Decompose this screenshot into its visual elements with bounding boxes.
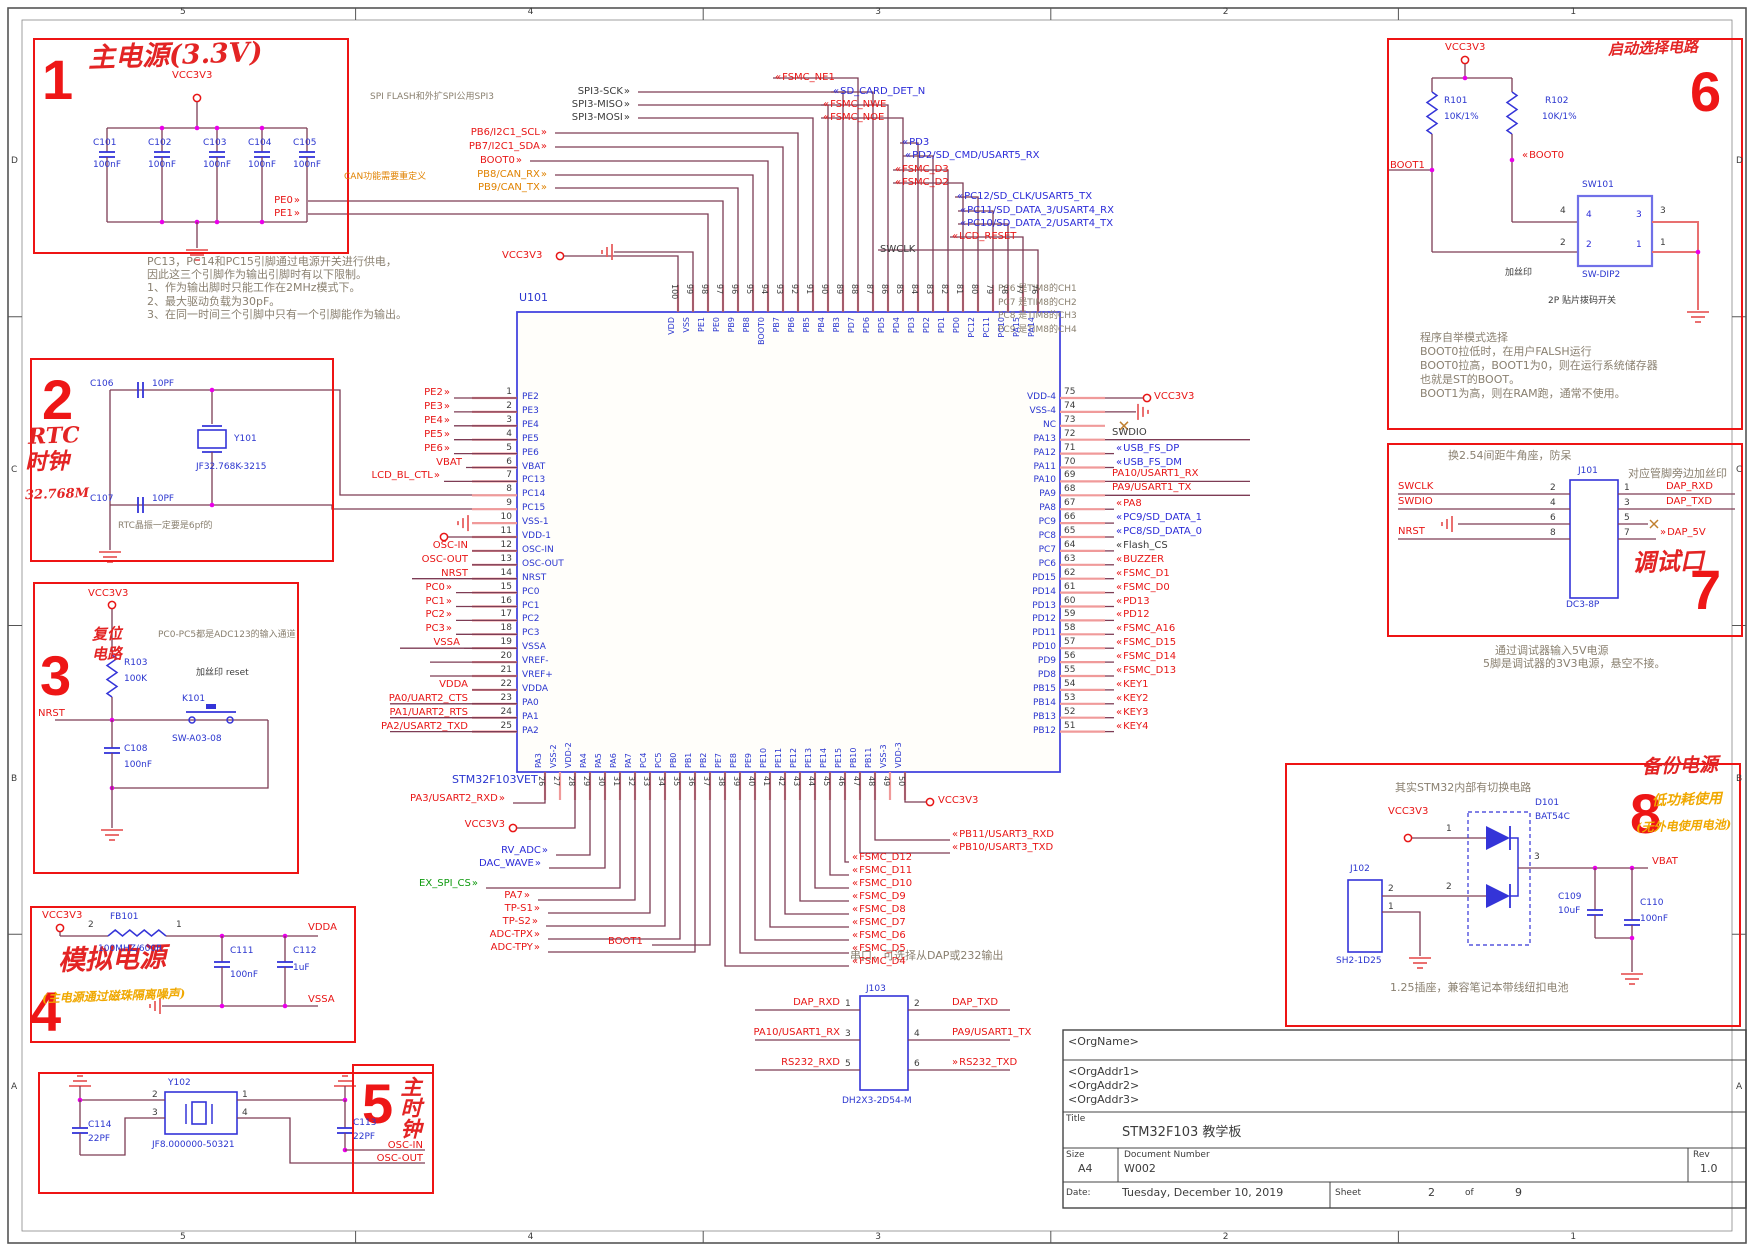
crystal-part: JF8.000000-50321 (152, 1140, 235, 1150)
pin-number: 7 (506, 470, 512, 480)
pin-number: 51 (1064, 721, 1075, 731)
net-label: LCD_BL_CTL (372, 470, 440, 482)
net-label: BOOT0 (480, 155, 522, 167)
pin-name: PC8 (1039, 531, 1056, 541)
pin-number: 74 (1064, 401, 1075, 411)
ruler-bottom-tick: 4 (528, 1232, 534, 1242)
pin-number: 2 (88, 920, 94, 930)
pin-name: PC7 (1039, 545, 1056, 555)
net-label: SWCLK (1398, 481, 1433, 493)
pin-number: 36 (684, 776, 696, 786)
net-label: DAP_TXD (1666, 496, 1712, 508)
net-label: DAP_RXD (793, 997, 840, 1009)
mcu-note-can: CAN功能需要重定义 (344, 172, 426, 182)
pin-number: 93 (772, 284, 784, 294)
pin-name: PC2 (522, 614, 539, 624)
net-label: PC8/SD_DATA_0 (1116, 526, 1202, 538)
pin-name: VSSA (522, 642, 546, 652)
pin-name: PD15 (1032, 573, 1056, 583)
pin-name: PD0 (952, 317, 964, 333)
pin-number: 30 (594, 776, 606, 786)
pin-name: VDD-4 (1027, 392, 1056, 402)
pin-name: PB12 (1033, 726, 1056, 736)
net-label: TP-S1 (505, 903, 540, 915)
pin-name: PB2 (699, 726, 711, 768)
ruler-left-tick: B (11, 774, 17, 784)
cap-ref: C105 (293, 138, 316, 148)
pin-number: 97 (712, 284, 724, 294)
pin-name: PB3 (832, 317, 844, 332)
pin-number: 71 (1064, 443, 1075, 453)
pin-number: 92 (787, 284, 799, 294)
net-label: PB7/I2C1_SDA (469, 141, 547, 153)
pin-name: PC14 (522, 489, 545, 499)
pin-name: PD1 (937, 317, 949, 333)
net-nrst: NRST (38, 708, 65, 720)
connector-part: DC3-8P (1566, 600, 1599, 610)
pin-name: PC13 (522, 475, 545, 485)
cap-ref: C111 (230, 946, 253, 956)
pin-number: 62 (1064, 568, 1075, 578)
pin-number: 6 (914, 1059, 920, 1069)
pin-name: PC4 (639, 726, 651, 768)
net-label: SPI3-SCK (578, 86, 630, 98)
pin-name: PD11 (1032, 628, 1056, 638)
pin-number: 4 (1560, 206, 1566, 216)
pin-name: PB8 (742, 317, 754, 332)
pin-number: 89 (832, 284, 844, 294)
net-osc-out: OSC-OUT (377, 1153, 423, 1165)
net-label: SWCLK (880, 244, 915, 256)
pin-name: PE15 (834, 726, 846, 768)
pin-name: PE13 (804, 726, 816, 768)
box6-desc: 2P 贴片拨码开关 (1548, 296, 1616, 306)
pin-number: 26 (534, 776, 546, 786)
pin-number: 8 (506, 484, 512, 494)
net-label: PD2/SD_CMD/USART5_RX (905, 150, 1040, 162)
ruler-top-tick: 5 (180, 7, 186, 17)
pin-number: 72 (1064, 429, 1075, 439)
pin-number: 19 (501, 637, 512, 647)
pin-number: 8 (1550, 528, 1556, 538)
pin-name: VDD (667, 317, 679, 335)
pin-number: 69 (1064, 470, 1075, 480)
net-label: LCD_RESET (952, 231, 1016, 243)
pin-number: 32 (624, 776, 636, 786)
box3-note-silk: 加丝印 reset (196, 668, 249, 678)
net-label: FSMC_NWE (823, 99, 886, 111)
pin-number: 49 (879, 776, 891, 786)
pin-number: 67 (1064, 498, 1075, 508)
pin-name: VDD-3 (894, 726, 906, 768)
box2-note: RTC晶振一定要是6pf的 (118, 521, 212, 531)
box7-note-below: 5脚是调试器的3V3电源，悬空不接。 (1483, 658, 1666, 671)
pin-number: 22 (501, 679, 512, 689)
pin-number: 5 (845, 1059, 851, 1069)
pin-name: PD8 (1038, 670, 1056, 680)
pin-number: 73 (1064, 415, 1075, 425)
net-label: FSMC_D6 (852, 930, 906, 942)
pin-name: NC (1043, 420, 1056, 430)
net-label: BUZZER (1116, 554, 1164, 566)
pin-number: 35 (669, 776, 681, 786)
pin-name: PD6 (862, 317, 874, 333)
ruler-top-tick: 1 (1570, 7, 1576, 17)
cap-ref: C107 (90, 494, 113, 504)
net-osc-in: OSC-IN (388, 1140, 423, 1152)
mcu-note-tim8: PC7 是TIM8的CH2 (998, 298, 1077, 308)
schematic-page: 1 主电源(3.3V) VCC3V3 2 RTC 时钟 32.768M C106… (0, 0, 1754, 1251)
titleblock-rev: 1.0 (1700, 1163, 1718, 1176)
titleblock-title: STM32F103 教学板 (1122, 1126, 1241, 1141)
pin-number: 76 (1027, 284, 1039, 294)
pin-name: VDD-1 (522, 531, 551, 541)
net-label: PA2/USART2_TXD (381, 721, 468, 733)
pin-number: 75 (1064, 387, 1075, 397)
pin-name: PB0 (669, 726, 681, 768)
pin-name: PD12 (1032, 614, 1056, 624)
pin-number: 3 (506, 415, 512, 425)
net-label: DAP_RXD (1666, 481, 1713, 493)
connector-ref: J101 (1578, 466, 1598, 476)
net-vcc3v3: VCC3V3 (502, 250, 542, 262)
net-label: RS232_RXD (781, 1057, 840, 1069)
pin-number: 40 (744, 776, 756, 786)
pin-number: 83 (922, 284, 934, 294)
net-label: PE5 (424, 429, 450, 441)
net-label: FSMC_D8 (852, 904, 906, 916)
pin-number: 6 (1550, 513, 1556, 523)
pin-number: 39 (729, 776, 741, 786)
pin-name: NRST (522, 573, 546, 583)
box7-silk: 对应管脚旁边加丝印 (1628, 468, 1727, 481)
cap-value: 100nF (203, 160, 231, 170)
pin-number: 47 (849, 776, 861, 786)
net-label: RV_ADC (501, 845, 548, 857)
titleblock-org: <OrgName> (1068, 1036, 1139, 1049)
connector-ref: J103 (866, 984, 886, 994)
net-label: RS232_TXD (952, 1057, 1017, 1069)
pin-name: PB7 (772, 317, 784, 332)
box8-number: 8 (1630, 782, 1661, 846)
pin-number: 14 (501, 568, 512, 578)
pin-name: PA7 (624, 726, 636, 768)
crystal-ref: Y102 (168, 1078, 191, 1088)
cap-value: 100nF (230, 970, 258, 980)
box6-note-line: BOOT0拉低时，在用户FALSH运行 (1420, 346, 1592, 359)
ruler-bottom-tick: 3 (875, 1232, 881, 1242)
pin-number: 24 (501, 707, 512, 717)
net-label: FSMC_D2 (895, 177, 949, 189)
mcu-note-spi: SPI FLASH和外扩SPI公用SPI3 (370, 92, 494, 102)
pin-number: 2 (914, 999, 920, 1009)
pin-number: 1 (1446, 824, 1452, 834)
net-label: VSSA (433, 637, 460, 649)
net-label: PE6 (424, 443, 450, 455)
pin-name: PA14 (1027, 317, 1039, 337)
pin-number: 20 (501, 651, 512, 661)
pin-number: 3 (1534, 852, 1540, 862)
net-label: PE3 (424, 401, 450, 413)
annotation-box-3 (33, 582, 299, 874)
pin-number: 25 (501, 721, 512, 731)
pin-number: 1 (1660, 238, 1666, 248)
pin-name: VSS (682, 317, 694, 333)
pin-name: PE6 (522, 448, 539, 458)
net-label: KEY1 (1116, 679, 1148, 691)
pin-number: 4 (1550, 498, 1556, 508)
pin-number: 43 (789, 776, 801, 786)
pin-number: 70 (1064, 457, 1075, 467)
connector-ref: J102 (1350, 864, 1370, 874)
titleblock-date: Tuesday, December 10, 2019 (1122, 1187, 1283, 1200)
cap-value: 10PF (152, 379, 174, 389)
pin-name: PC12 (967, 317, 979, 338)
pin-number: 31 (609, 776, 621, 786)
pin-name: VBAT (522, 462, 545, 472)
cap-ref: C108 (124, 744, 147, 754)
net-vcc3v3: VCC3V3 (172, 70, 212, 82)
net-label: ADC-TPX (490, 929, 540, 941)
net-label: SPI3-MISO (572, 99, 630, 111)
pin-number: 2 (1550, 483, 1556, 493)
pin-number: 68 (1064, 484, 1075, 494)
connector-part: SH2-1D25 (1336, 956, 1382, 966)
cap-ref: C110 (1640, 898, 1663, 908)
pin-name: PE10 (759, 726, 771, 768)
net-label: PC0 (426, 582, 453, 594)
cap-ref: C104 (248, 138, 271, 148)
pin-number: 100 (667, 284, 679, 299)
pin-number: 2 (506, 401, 512, 411)
net-label: NRST (441, 568, 468, 580)
pin-number: 78 (997, 284, 1009, 294)
cap-ref: C112 (293, 946, 316, 956)
net-label: FSMC_NE1 (775, 72, 835, 84)
pin-number: 2 (1586, 240, 1592, 250)
net-vbat: VBAT (1652, 856, 1678, 868)
pin-name: PA1 (522, 712, 539, 722)
pin-number: 90 (817, 284, 829, 294)
pin-number: 17 (501, 609, 512, 619)
net-label: PA0/UART2_CTS (389, 693, 468, 705)
pin-number: 2 (1388, 884, 1394, 894)
cap-value: 100nF (93, 160, 121, 170)
titleblock-total: 9 (1515, 1187, 1522, 1200)
res-ref: R103 (124, 658, 147, 668)
pin-name: PE5 (522, 434, 539, 444)
ruler-right-tick: B (1736, 774, 1742, 784)
pin-number: 3 (1660, 206, 1666, 216)
box2-title-3: 32.768M (25, 487, 90, 504)
pin-number: 61 (1064, 582, 1075, 592)
pin-number: 96 (727, 284, 739, 294)
net-label: KEY4 (1116, 721, 1148, 733)
pin-name: VSS-4 (1029, 406, 1056, 416)
pin-number: 34 (654, 776, 666, 786)
net-label: EX_SPI_CS (419, 878, 478, 890)
net-label: FSMC_D1 (1116, 568, 1170, 580)
titleblock-doc-label: Document Number (1124, 1150, 1210, 1160)
pin-number: 64 (1064, 540, 1075, 550)
pin-number: 1 (845, 999, 851, 1009)
pin-number: 80 (967, 284, 979, 294)
pin-number: 95 (742, 284, 754, 294)
pin-number: 6 (506, 457, 512, 467)
box6-note-line: BOOT0拉高，BOOT1为0，则在运行系统储存器 (1420, 360, 1658, 373)
pin-number: 41 (759, 776, 771, 786)
pin-number: 7 (1624, 528, 1630, 538)
pin-number: 84 (907, 284, 919, 294)
net-label: FSMC_D7 (852, 917, 906, 929)
pin-number: 57 (1064, 637, 1075, 647)
res-value: 100K (124, 674, 147, 684)
box1-number: 1 (42, 48, 73, 112)
pin-number: 98 (697, 284, 709, 294)
pin-name: VDDA (522, 684, 548, 694)
net-label: PA3/USART2_RXD (410, 793, 505, 805)
ferrite-ref: FB101 (110, 912, 139, 922)
diode-ref: D101 (1535, 798, 1559, 808)
pin-number: 15 (501, 582, 512, 592)
titleblock-size: A4 (1078, 1163, 1093, 1176)
pin-number: 4 (242, 1108, 248, 1118)
pin-name: VSS-1 (522, 517, 549, 527)
ruler-top-tick: 4 (528, 7, 534, 17)
pin-number: 87 (862, 284, 874, 294)
cap-value: 1uF (293, 963, 310, 973)
cap-value: 100nF (148, 160, 176, 170)
switch-ref: K101 (182, 694, 205, 704)
net-vssa: VSSA (308, 994, 335, 1006)
net-label: PA8 (1116, 498, 1142, 510)
titleblock-addr3: <OrgAddr3> (1068, 1094, 1139, 1107)
pin-number: 81 (952, 284, 964, 294)
pin-number: 2 (1446, 882, 1452, 892)
box8-title: 备份电源 (1642, 755, 1719, 779)
ruler-right-tick: C (1736, 465, 1742, 475)
pin-number: 91 (802, 284, 814, 294)
pin-name: PE0 (712, 317, 724, 332)
pin-number: 4 (1586, 210, 1592, 220)
net-label: BOOT1 (608, 936, 643, 948)
net-vcc3v3: VCC3V3 (1388, 806, 1428, 818)
pin-number: 5 (1624, 513, 1630, 523)
pin-number: 55 (1064, 665, 1075, 675)
pin-number: 54 (1064, 679, 1075, 689)
pin-number: 33 (639, 776, 651, 786)
pin-number: 45 (819, 776, 831, 786)
box1-title: 主电源(3.3V) (88, 37, 263, 74)
pin-number: 50 (894, 776, 906, 786)
net-label: FSMC_D14 (1116, 651, 1176, 663)
titleblock-of: of (1465, 1188, 1474, 1198)
net-label: PA9/USART1_TX (1112, 482, 1191, 494)
box6-note-line: BOOT1为高，则在RAM跑，通常不使用。 (1420, 388, 1626, 401)
pin-number: 18 (501, 623, 512, 633)
net-label: FSMC_D10 (852, 878, 912, 890)
box1-note-line: 3、在同一时间三个引脚中只有一个引脚能作为输出。 (147, 309, 407, 322)
pin-number: 23 (501, 693, 512, 703)
net-label: FSMC_D13 (1116, 665, 1176, 677)
net-label: SWDIO (1112, 427, 1147, 439)
cap-value: 10PF (152, 494, 174, 504)
pin-number: 65 (1064, 526, 1075, 536)
net-label: DAP_TXD (952, 997, 998, 1009)
pin-name: PA8 (1039, 503, 1056, 513)
pin-name: PC1 (522, 601, 539, 611)
diode-part: BAT54C (1535, 812, 1570, 822)
cap-ref: C101 (93, 138, 116, 148)
pin-name: PD2 (922, 317, 934, 333)
box4-number: 4 (30, 980, 61, 1044)
ruler-left-tick: A (11, 1082, 17, 1092)
pin-number: 2 (1560, 238, 1566, 248)
pin-number: 38 (714, 776, 726, 786)
net-label: FSMC_D0 (1116, 582, 1170, 594)
box1-note-line: PC13，PC14和PC15引脚通过电源开关进行供电， (147, 256, 397, 269)
net-vcc3v3: VCC3V3 (1445, 42, 1485, 54)
ruler-bottom-tick: 2 (1223, 1232, 1229, 1242)
titleblock-sheet-label: Sheet (1335, 1188, 1361, 1198)
ruler-right-tick: D (1736, 156, 1743, 166)
pin-name: VDD-2 (564, 726, 576, 768)
net-label: PC1 (426, 596, 453, 608)
net-label: PB9/CAN_TX (478, 182, 547, 194)
pin-number: 99 (682, 284, 694, 294)
pin-name: PB10 (849, 726, 861, 768)
pin-number: 28 (564, 776, 576, 786)
pin-name: PB9 (727, 317, 739, 332)
cap-ref: C103 (203, 138, 226, 148)
cap-ref: C114 (88, 1120, 111, 1130)
net-vdda: VDDA (308, 922, 337, 934)
pin-number: 58 (1064, 623, 1075, 633)
pin-name: PE7 (714, 726, 726, 768)
net-vcc3v3: VCC3V3 (88, 588, 128, 600)
pin-number: 1 (176, 920, 182, 930)
cap-value: 100nF (293, 160, 321, 170)
pin-name: PC0 (522, 587, 539, 597)
titleblock-title-label: Title (1066, 1114, 1085, 1124)
net-label: FSMC_D5 (852, 943, 906, 955)
net-label: USB_FS_DM (1116, 457, 1182, 469)
pin-number: 11 (501, 526, 512, 536)
net-label: FSMC_D3 (895, 164, 949, 176)
net-label: PA1/UART2_RTS (390, 707, 469, 719)
net-label: FSMC_D11 (852, 865, 912, 877)
pin-name: PC3 (522, 628, 539, 638)
pin-number: 27 (549, 776, 561, 786)
net-label: PB8/CAN_RX (477, 169, 547, 181)
cap-value: 22PF (88, 1134, 110, 1144)
pin-number: 1 (1624, 483, 1630, 493)
box1-note-line: 2、最大驱动负载为30pF。 (147, 296, 280, 309)
ferrite-value: 100MHZ/600R (98, 944, 162, 954)
res-value: 10K/1% (1542, 112, 1577, 122)
box2-title-1: RTC (28, 423, 81, 450)
pin-number: 53 (1064, 693, 1075, 703)
pin-number: 86 (877, 284, 889, 294)
box3-title-1: 复位 (92, 625, 123, 643)
pin-name: PB14 (1033, 698, 1056, 708)
pin-name: PA0 (522, 698, 539, 708)
net-label: FSMC_D4 (852, 956, 906, 968)
net-label: PE2 (424, 387, 450, 399)
pin-number: 29 (579, 776, 591, 786)
pin-name: PC6 (1039, 559, 1056, 569)
box6-note-line: 也就是ST的BOOT。 (1420, 374, 1520, 387)
